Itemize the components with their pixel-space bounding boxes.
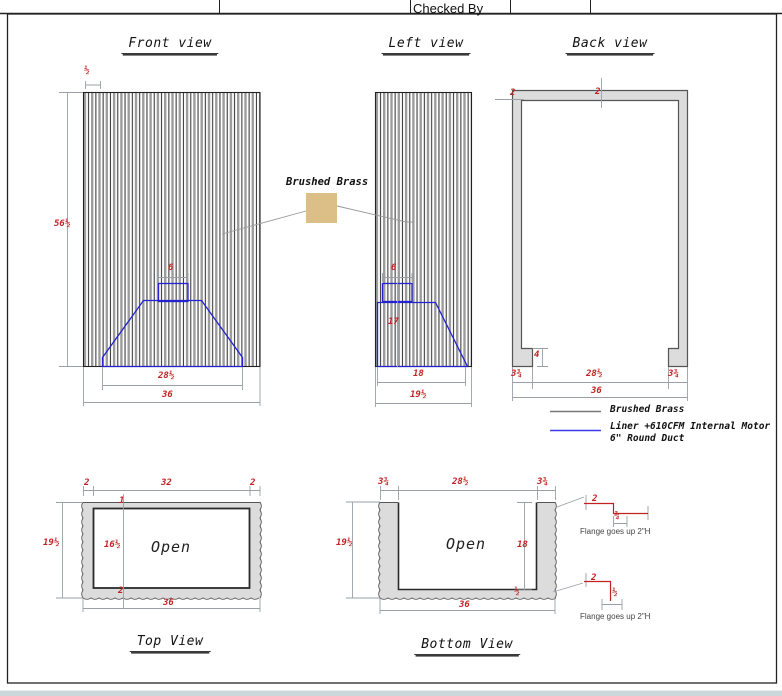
legend-liner-label-1: Liner +610CFM Internal Motor — [610, 421, 770, 432]
flange2-caption: Flange goes up 2"H — [580, 612, 650, 621]
bottom-dim-floor: ½ — [514, 587, 519, 597]
front-dim-height: 56½ — [54, 219, 70, 229]
left-dim-depth: 19½ — [410, 390, 426, 400]
top-view-title: Top View — [130, 634, 211, 652]
window-edge-strip — [0, 691, 782, 696]
bottom-dim-width: 36 — [459, 600, 470, 610]
top-dim-back-wall: 2 — [118, 586, 123, 596]
legend-liner-label-2: 6" Round Duct — [610, 433, 684, 444]
back-dim-foot-height: 4 — [534, 350, 539, 360]
left-dim-liner-depth: 18 — [413, 369, 424, 379]
back-dim-top: 2 — [595, 87, 600, 97]
top-dim-wall-left: 2 — [84, 478, 89, 488]
left-view-linework — [376, 93, 472, 408]
front-dim-liner-width: 28½ — [158, 371, 174, 381]
back-dim-foot-right: 3¾ — [668, 369, 679, 379]
brass-swatch — [306, 193, 337, 223]
front-view-linework — [59, 81, 260, 406]
back-dim-foot-left: 3¾ — [511, 369, 522, 379]
top-dim-inner-depth: 16½ — [104, 540, 120, 550]
back-view-linework — [495, 78, 688, 401]
bottom-open-label: Open — [446, 535, 486, 553]
legend-lines — [550, 412, 601, 431]
left-view-title: Left view — [382, 36, 471, 54]
brass-callout-label: Brushed Brass — [286, 176, 368, 188]
drawing-sheet: Checked By Front view Left view Back vie… — [0, 0, 782, 696]
front-dim-width: 36 — [162, 390, 173, 400]
flange2-dim-b: ½ — [612, 588, 617, 598]
front-panel — [84, 93, 261, 367]
top-dim-width: 36 — [163, 598, 174, 608]
checked-by-label: Checked By — [413, 1, 483, 16]
left-dim-duct: 6 — [391, 263, 396, 273]
front-dim-duct: 6 — [168, 263, 173, 273]
top-dim-wall-right: 2 — [250, 478, 255, 488]
flange1-caption: Flange goes up 2"H — [580, 527, 650, 536]
bottom-dim-wall-right: 3¾ — [537, 477, 548, 487]
top-open-label: Open — [151, 538, 191, 556]
back-dim-side: 2 — [510, 88, 515, 98]
front-dim-slat: ½ — [84, 66, 89, 76]
front-view-title: Front view — [121, 36, 218, 54]
top-dim-inner-width: 32 — [161, 478, 172, 488]
bottom-view-title: Bottom View — [414, 637, 520, 655]
back-dim-opening: 28½ — [586, 369, 602, 379]
top-dim-depth: 19½ — [43, 538, 59, 548]
bottom-dim-opening: 28½ — [452, 477, 468, 487]
back-frame — [513, 91, 688, 367]
bottom-dim-inner-depth: 18 — [517, 540, 528, 550]
flange2-dim-a: 2 — [591, 573, 596, 583]
legend-brass-label: Brushed Brass — [610, 404, 684, 415]
bottom-dim-wall-left: 3¾ — [378, 477, 389, 487]
bottom-dim-depth: 19½ — [336, 538, 352, 548]
back-dim-width: 36 — [591, 386, 602, 396]
back-view-title: Back view — [566, 36, 655, 54]
top-dim-front-wall: 1 — [119, 496, 124, 506]
flange1-dim-b: ¾ — [614, 511, 619, 521]
flange1-dim-a: 2 — [592, 494, 597, 504]
left-dim-liner-height: 17 — [388, 317, 399, 327]
